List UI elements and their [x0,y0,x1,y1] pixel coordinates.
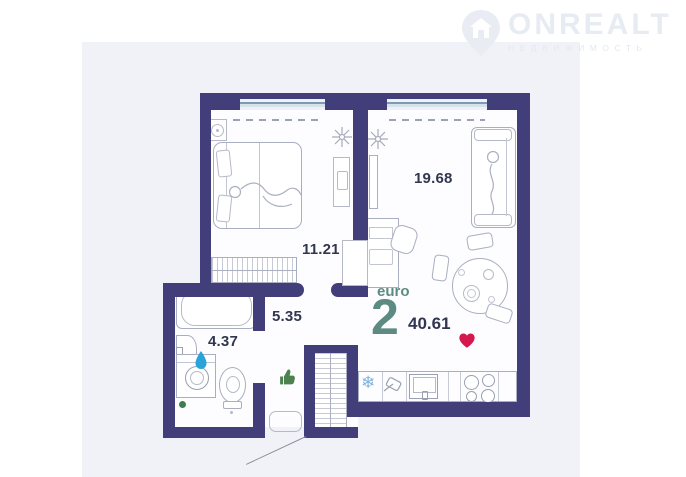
onrealt-logo: ONREALT НЕДВИЖИМОСТЬ [460,8,672,58]
pillow [216,149,233,177]
wall [253,383,265,438]
living-curtain-rail [389,119,485,121]
pillow [216,194,233,222]
stove-burner [481,389,495,403]
map-pin-house-icon [460,8,502,58]
logo-subtitle: НЕДВИЖИМОСТЬ [508,43,672,53]
kitchen-sink [409,374,438,399]
cup [483,269,494,280]
stove-burner [466,391,477,402]
wall [304,427,358,438]
wall [304,345,315,438]
toilet [219,367,246,403]
entry-rug [269,411,302,432]
wall [325,93,387,110]
wall [347,345,358,407]
sink-faucet [422,391,428,400]
stove-burner [464,375,479,390]
bedside-table [333,157,350,207]
toilet-seat [226,376,240,393]
logo-brand: ONREALT [508,8,672,42]
page: { "logo": { "brand": "ONREALT", "subtitl… [0,0,686,477]
tv-unit [369,155,378,209]
stove-burner [482,374,495,387]
wall [304,345,358,353]
wall [517,93,530,417]
wall [240,93,325,99]
living-window-sill [387,104,487,107]
table-lamp [337,171,348,190]
hall-dresser [342,240,368,286]
wall [163,283,304,297]
wall [353,110,368,240]
wardrobe-rail [330,353,331,427]
wall [347,402,530,417]
bedroom-window-sill [240,104,325,107]
counter-divider [382,372,383,401]
fridge-snowflake-icon: ❄ [361,374,375,391]
bed-blanket-edge [259,143,260,228]
wall [163,427,265,438]
double-bed [213,142,302,229]
green-dot [179,401,186,408]
lamp-circle [211,124,224,137]
wardrobe-rail [212,270,296,271]
toilet-tank [223,401,242,409]
desk-item [369,249,393,265]
wall [163,283,175,438]
sofa [471,127,516,228]
thumb-up-icon [279,368,297,386]
hall-wardrobe [313,352,347,428]
area-label-hallway: 5.35 [272,308,302,325]
counter-divider [406,372,407,401]
plate [463,285,480,302]
counter-divider [498,372,499,401]
room-count-label: 2 [371,291,399,344]
area-label-bedroom: 11.21 [302,241,340,258]
total-area-label: 40.61 [408,314,451,334]
cup [458,269,465,276]
wall [253,283,265,331]
counter-divider [460,372,461,401]
logo-text: ONREALT НЕДВИЖИМОСТЬ [508,8,672,53]
wall [200,93,211,285]
heart-icon [458,332,476,349]
desk-item [369,227,393,239]
bedroom-wardrobe [211,257,297,283]
sofa-backrest [506,138,507,216]
toilet-drain [230,411,233,414]
water-drop-icon [193,350,209,370]
cup [488,296,495,303]
wall [387,93,487,99]
area-label-bathroom: 4.37 [208,333,238,350]
counter-divider [448,372,449,401]
area-label-living: 19.68 [414,170,453,187]
bedroom-curtain-rail [233,119,323,121]
